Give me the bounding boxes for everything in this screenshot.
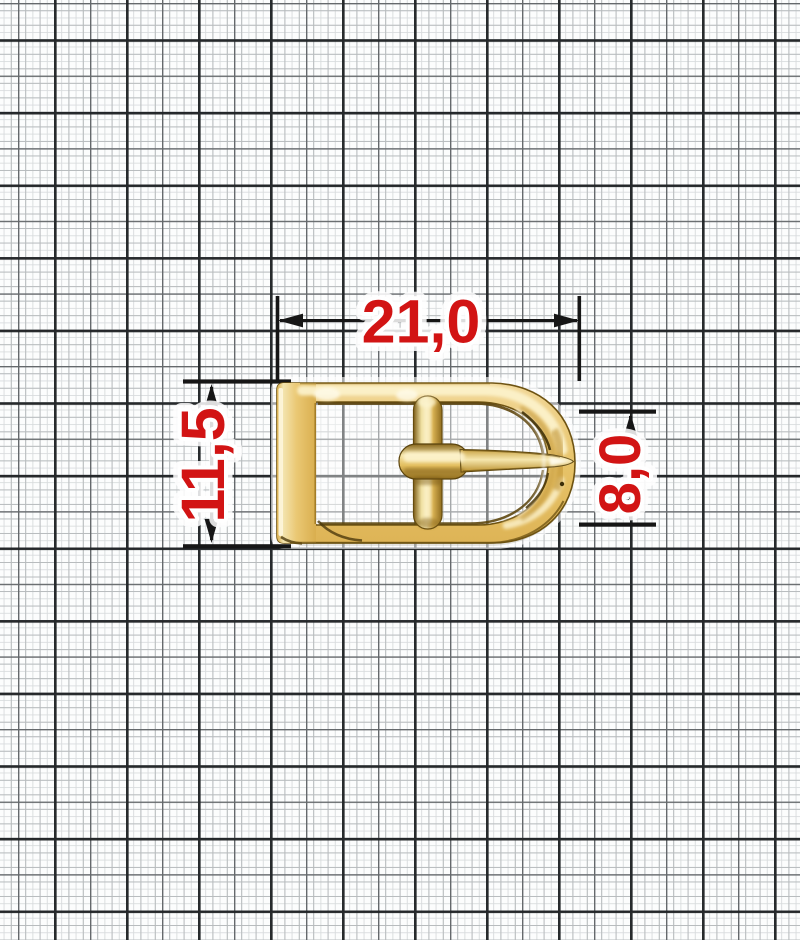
svg-text:11,5: 11,5 bbox=[169, 407, 237, 522]
svg-text:21,0: 21,0 bbox=[362, 288, 481, 356]
svg-text:8,0: 8,0 bbox=[588, 434, 653, 515]
